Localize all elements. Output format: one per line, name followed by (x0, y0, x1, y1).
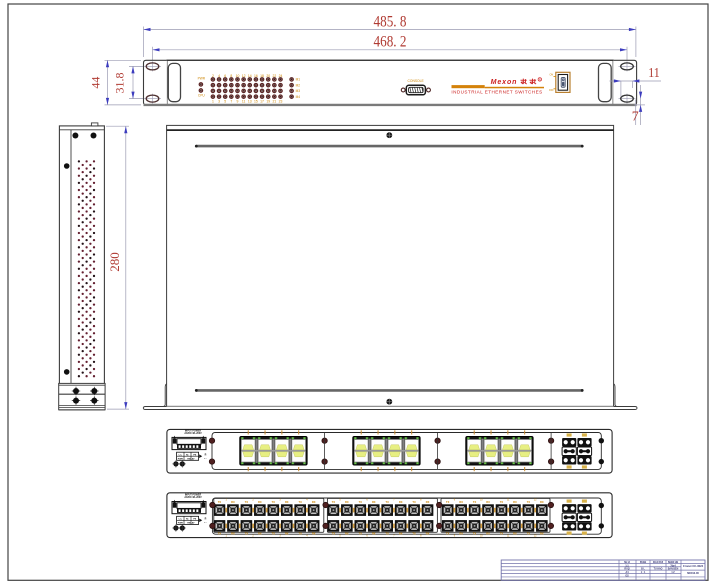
svg-text:7: 7 (632, 109, 639, 124)
svg-text:+ -: + - (204, 522, 207, 524)
svg-text:TX: TX (299, 532, 303, 536)
svg-text:4: 4 (218, 74, 220, 78)
svg-text:Cronet CC-3024: Cronet CC-3024 (683, 564, 704, 568)
svg-text:TX: TX (272, 500, 276, 504)
svg-text:TX: TX (218, 532, 222, 536)
svg-text:SH JI: SH JI (624, 562, 630, 564)
svg-text:RX: RX (285, 500, 289, 504)
svg-text:Mexon: Mexon (491, 79, 518, 86)
svg-text:18: 18 (260, 74, 264, 78)
svg-text:RX: RX (399, 532, 403, 536)
svg-text:17: 17 (260, 100, 264, 104)
svg-text:RX: RX (372, 532, 376, 536)
svg-text:PAGE: PAGE (640, 561, 647, 564)
svg-text:PWR: PWR (198, 77, 206, 81)
svg-text:13: 13 (248, 100, 252, 104)
svg-text:ON: ON (550, 73, 554, 76)
svg-text:RX: RX (486, 500, 490, 504)
svg-text:RX: RX (285, 532, 289, 536)
svg-text:R: R (205, 454, 207, 457)
svg-text:TX: TX (386, 532, 390, 536)
svg-text:11: 11 (648, 66, 660, 81)
svg-text:TX: TX (446, 500, 450, 504)
svg-text:RI QI: RI QI (624, 569, 630, 571)
svg-text:AC/DC:48~260V: AC/DC:48~260V (184, 496, 202, 499)
svg-text:AC/DC:48~260V: AC/DC:48~260V (184, 432, 202, 435)
svg-text:RX: RX (459, 532, 463, 536)
svg-text:12: 12 (242, 74, 246, 78)
svg-text:1: 1 (212, 100, 214, 104)
svg-text:TU HAO: TU HAO (654, 568, 663, 571)
svg-text:PWR: PWR (178, 523, 184, 525)
svg-text:RX: RX (513, 532, 517, 536)
svg-text:44: 44 (89, 77, 103, 89)
svg-text:RX: RX (426, 500, 430, 504)
svg-text:TX: TX (359, 532, 363, 536)
svg-text:22: 22 (272, 74, 276, 78)
svg-text:GS: GS (625, 575, 629, 577)
svg-text:BAN BEN: BAN BEN (668, 568, 679, 571)
svg-text:16: 16 (254, 74, 258, 78)
svg-text:24: 24 (279, 74, 283, 78)
svg-text:RX: RX (540, 532, 544, 536)
svg-text:RX: RX (231, 500, 235, 504)
svg-text:RX: RX (426, 532, 430, 536)
svg-text:TX: TX (245, 500, 249, 504)
svg-text:RX: RX (258, 532, 262, 536)
svg-text:N/-: N/- (186, 519, 189, 521)
svg-text:TX: TX (332, 532, 336, 536)
svg-text:TX: TX (446, 532, 450, 536)
svg-text:485. 8: 485. 8 (374, 14, 407, 31)
svg-text:TX: TX (386, 500, 390, 504)
svg-text:RX: RX (312, 532, 316, 536)
svg-text:468. 2: 468. 2 (374, 33, 407, 50)
svg-text:INDUSTRIAL ETHERNET SWITCHES: INDUSTRIAL ETHERNET SWITCHES (451, 90, 542, 95)
svg-text:10: 10 (236, 74, 240, 78)
svg-text:TX: TX (218, 500, 222, 504)
svg-text:RX: RX (372, 500, 376, 504)
svg-text:SHEN HE: SHEN HE (668, 562, 679, 564)
svg-text:14: 14 (248, 74, 252, 78)
svg-text:M3: M3 (296, 89, 301, 93)
svg-text:8: 8 (230, 74, 232, 78)
svg-text:19: 19 (266, 100, 270, 104)
svg-text:2: 2 (212, 74, 214, 78)
svg-text:OFF: OFF (549, 89, 554, 92)
svg-text:+ -: + - (204, 458, 207, 460)
svg-text:PWR: PWR (178, 458, 184, 460)
svg-text:RX: RX (486, 532, 490, 536)
svg-text:RX: RX (540, 500, 544, 504)
svg-text:7dx4: 7dx4 (670, 564, 676, 567)
svg-text:TX: TX (527, 532, 531, 536)
svg-text:B L: B L (641, 569, 645, 571)
svg-text:TX: TX (527, 500, 531, 504)
svg-text:7: 7 (230, 100, 232, 104)
svg-text:M1: M1 (296, 78, 301, 82)
svg-text:TX: TX (245, 532, 249, 536)
svg-text:11: 11 (242, 100, 246, 104)
svg-text:TX: TX (473, 532, 477, 536)
svg-text:TX: TX (500, 500, 504, 504)
svg-text:M4: M4 (296, 95, 301, 99)
svg-text:R: R (205, 518, 207, 521)
svg-text:RX: RX (513, 500, 517, 504)
svg-text:RX: RX (345, 500, 349, 504)
svg-text:CONSOLE: CONSOLE (408, 79, 425, 83)
svg-text:TX: TX (272, 532, 276, 536)
svg-text:R: R (539, 78, 541, 82)
svg-text:RX: RX (399, 500, 403, 504)
svg-text:23: 23 (279, 100, 283, 104)
svg-text:3: 3 (218, 100, 220, 104)
svg-text:31.8: 31.8 (113, 73, 127, 94)
svg-text:RX: RX (258, 500, 262, 504)
svg-text:RX: RX (312, 500, 316, 504)
svg-text:TX: TX (412, 500, 416, 504)
svg-text:6: 6 (224, 74, 226, 78)
svg-text:5: 5 (224, 100, 226, 104)
svg-text:M2: M2 (296, 83, 301, 87)
svg-text:TX: TX (332, 500, 336, 504)
svg-text:XIAO DUI: XIAO DUI (653, 561, 664, 564)
svg-text:1 : 1: 1 : 1 (641, 572, 646, 574)
svg-text:TX: TX (299, 500, 303, 504)
svg-text:CPU: CPU (198, 94, 205, 98)
svg-text:RX: RX (459, 500, 463, 504)
svg-text:9: 9 (237, 100, 239, 104)
svg-text:RELAY: RELAY (187, 522, 195, 525)
svg-text:TX: TX (359, 500, 363, 504)
svg-text:RX: RX (231, 532, 235, 536)
svg-text:RX: RX (345, 532, 349, 536)
svg-text:20: 20 (266, 74, 270, 78)
svg-text:1 Z: 1 Z (671, 572, 675, 574)
svg-text:MX012-06: MX012-06 (687, 572, 699, 575)
svg-text:RELAY: RELAY (187, 457, 195, 460)
svg-text:21: 21 (272, 100, 276, 104)
svg-text:TX: TX (500, 532, 504, 536)
svg-text:15: 15 (254, 100, 258, 104)
svg-text:N/-: N/- (186, 454, 189, 456)
svg-text:TX: TX (473, 500, 477, 504)
svg-text:TX: TX (412, 532, 416, 536)
svg-text:280: 280 (107, 252, 122, 272)
